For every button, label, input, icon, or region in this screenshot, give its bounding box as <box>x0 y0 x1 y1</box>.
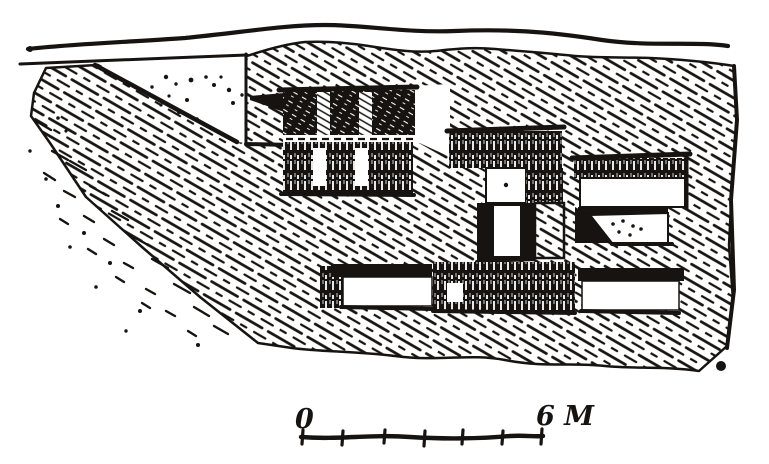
foundation-left-bottom-edge <box>341 307 433 309</box>
upper-course-joint-2 <box>359 92 372 135</box>
pier-shaded-block <box>526 168 563 203</box>
horizon-line <box>28 25 728 49</box>
section-drawing: 0 6 M <box>0 0 769 464</box>
upper-course-top-edge <box>279 87 417 90</box>
lower-course-gap-2 <box>355 148 368 186</box>
terrace-top-band <box>574 158 688 178</box>
foundation-white-block-right <box>582 281 679 310</box>
lower-course <box>283 142 413 194</box>
scale-bar: 0 6 M <box>295 401 595 446</box>
scale-bar-line <box>301 436 543 439</box>
pier-block-dot <box>504 183 508 187</box>
foundation-left-top-band <box>331 264 432 277</box>
foundation-mid-white-notch <box>447 283 463 302</box>
foundation-white-block-left <box>343 277 432 306</box>
lower-course-gap-1 <box>313 148 326 186</box>
terrace-white-block-1 <box>580 178 685 207</box>
upper-course <box>283 90 415 136</box>
section-drawing-page: 0 6 M <box>0 0 769 464</box>
foundation-right-top-band <box>578 268 684 281</box>
lower-foundation-course <box>320 262 684 313</box>
horizon-line-start-blob <box>27 46 33 52</box>
lower-course-bottom-edge <box>281 194 414 195</box>
foundation-mid-bottom-edge <box>433 311 575 313</box>
upper-course-joint-1 <box>317 92 330 135</box>
scale-end-label: 6 M <box>536 401 595 432</box>
corner-blob <box>716 361 726 371</box>
foundation-right-bottom-edge <box>581 311 679 313</box>
pier-lower-white-slot <box>494 206 520 256</box>
pier-top-band <box>449 131 562 168</box>
